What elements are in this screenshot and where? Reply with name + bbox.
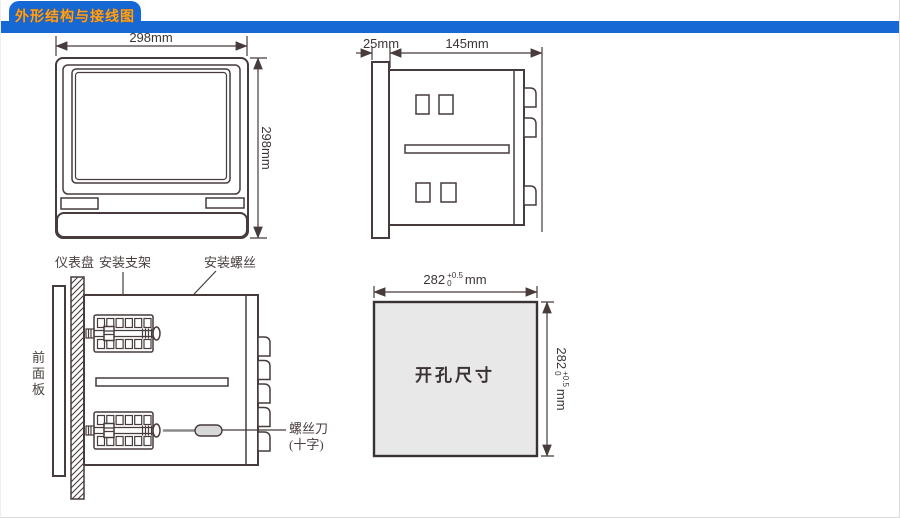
side-body-dim-label: 145mm bbox=[432, 37, 502, 51]
front-width-dim-label: 298mm bbox=[116, 31, 186, 45]
mount-clip bbox=[258, 408, 270, 427]
dim-tolerance: +0.50 bbox=[447, 272, 463, 288]
mount-clip bbox=[524, 118, 536, 137]
label-mounting-screw: 安装螺丝 bbox=[204, 256, 256, 270]
cutout-height-dim-label: 282 +0.50 mm bbox=[553, 329, 569, 429]
panel-board-hatch bbox=[71, 277, 84, 499]
figure-install-view bbox=[53, 271, 286, 499]
dim-base: 282 bbox=[423, 273, 445, 287]
screwdriver-handle bbox=[195, 425, 222, 436]
mount-clip bbox=[258, 432, 270, 451]
dim-unit: mm bbox=[465, 273, 487, 287]
label-screwdriver-1: 螺丝刀 bbox=[289, 422, 328, 436]
mounting-bracket-top bbox=[86, 315, 160, 352]
side-front-flange bbox=[372, 62, 389, 238]
label-front-panel: 前 面 板 bbox=[32, 350, 45, 398]
dim-tolerance: +0.50 bbox=[553, 371, 569, 387]
front-panel bbox=[53, 286, 65, 476]
cutout-center-label: 开孔尺寸 bbox=[395, 369, 515, 383]
dim-base: 282 bbox=[554, 347, 568, 369]
cutout-width-dim-label: 282 +0.50 mm bbox=[405, 272, 505, 288]
mounting-bracket-bottom bbox=[86, 412, 160, 449]
mount-clip bbox=[258, 384, 270, 403]
mount-clip bbox=[524, 186, 536, 205]
front-height-dim-label: 298mm bbox=[259, 117, 273, 179]
side-flange-dim-label: 25mm bbox=[353, 37, 409, 51]
figure-front-view bbox=[56, 36, 267, 238]
label-screwdriver-2: (十字) bbox=[289, 438, 324, 452]
figure-side-view bbox=[356, 47, 542, 238]
mount-clip bbox=[258, 361, 270, 380]
label-mounting-bracket: 安装支架 bbox=[99, 256, 151, 270]
front-bottom-panel bbox=[57, 213, 247, 237]
page: 外形结构与接线图 bbox=[0, 0, 900, 518]
mount-clip bbox=[524, 88, 536, 107]
label-panel-board: 仪表盘 bbox=[55, 256, 94, 270]
mount-clip bbox=[258, 337, 270, 356]
display-screen bbox=[72, 69, 230, 183]
dim-unit: mm bbox=[554, 389, 568, 411]
